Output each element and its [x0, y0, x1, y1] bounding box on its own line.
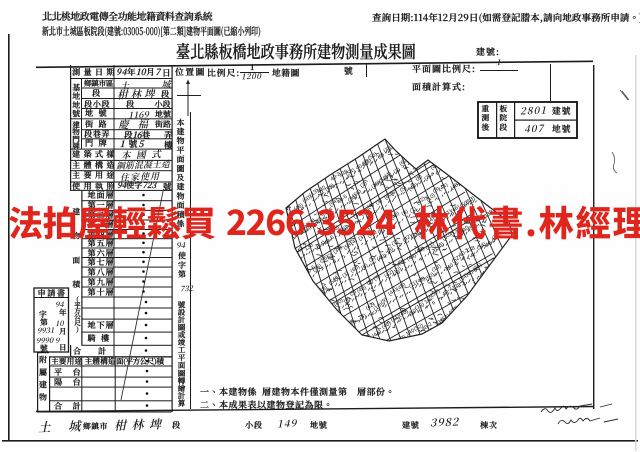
svg-text:(3): (3) [286, 376, 295, 385]
svg-text:(4): (4) [499, 275, 508, 284]
svg-text:(7): (7) [339, 351, 348, 360]
svg-text:(9): (9) [449, 154, 458, 163]
svg-text:(56): (56) [303, 293, 315, 303]
svg-text:(44): (44) [253, 255, 265, 265]
svg-text:(46): (46) [463, 164, 475, 175]
svg-text:(40): (40) [321, 357, 333, 367]
svg-text:(42): (42) [447, 129, 458, 140]
svg-text:(38): (38) [383, 144, 395, 155]
svg-text:(42): (42) [344, 335, 355, 346]
svg-text:(38): (38) [297, 316, 309, 327]
svg-text:(60): (60) [350, 264, 362, 275]
svg-text:(6): (6) [303, 365, 312, 374]
svg-text:40-6: 40-6 [266, 335, 278, 347]
svg-text:(58): (58) [493, 285, 505, 296]
svg-text:138: 138 [269, 314, 280, 324]
svg-text:(40): (40) [422, 143, 434, 153]
svg-text:(2): (2) [359, 180, 368, 189]
svg-text:40-6: 40-6 [284, 302, 296, 314]
svg-text:(50): (50) [267, 266, 279, 277]
svg-text:(3): (3) [324, 308, 333, 317]
svg-text:(3): (3) [307, 341, 316, 350]
svg-text:(13): (13) [431, 263, 443, 273]
svg-text:(3): (3) [513, 275, 522, 284]
svg-text:(44): (44) [454, 143, 466, 153]
svg-text:(13): (13) [273, 261, 284, 272]
svg-text:(5): (5) [416, 153, 425, 162]
svg-text:140: 140 [473, 184, 484, 194]
svg-text:(36): (36) [273, 332, 284, 343]
svg-text:(13): (13) [257, 300, 269, 310]
svg-text:(46): (46) [379, 344, 391, 354]
svg-text:(46): (46) [258, 274, 270, 285]
svg-text:(9): (9) [245, 260, 254, 269]
svg-text:(48): (48) [361, 353, 373, 364]
svg-text:140: 140 [263, 291, 274, 301]
svg-text:40-2: 40-2 [263, 321, 276, 332]
svg-text:(8): (8) [328, 355, 337, 364]
svg-text:(56): (56) [484, 263, 495, 274]
svg-text:(2): (2) [494, 259, 503, 268]
svg-text:(5): (5) [331, 329, 340, 338]
svg-text:(54): (54) [278, 308, 290, 319]
svg-text:(4): (4) [398, 133, 407, 142]
svg-text:(5): (5) [310, 362, 319, 370]
svg-text:138: 138 [289, 281, 300, 291]
svg-text:(36): (36) [293, 297, 304, 308]
svg-text:(5): (5) [429, 113, 438, 122]
svg-text:(58): (58) [308, 310, 320, 320]
svg-text:(54): (54) [296, 274, 308, 284]
svg-text:(2): (2) [476, 294, 485, 303]
svg-text:(10): (10) [333, 368, 345, 378]
svg-text:(38): (38) [483, 284, 495, 295]
svg-text:(38): (38) [278, 356, 290, 367]
svg-text:(3): (3) [407, 132, 416, 141]
svg-text:(7): (7) [439, 136, 448, 145]
svg-text:(58): (58) [287, 349, 299, 359]
svg-text:(40): (40) [436, 103, 448, 113]
svg-text:(6): (6) [323, 329, 332, 338]
svg-text:(11): (11) [371, 352, 382, 362]
svg-text:(4): (4) [316, 312, 325, 321]
svg-text:(52): (52) [272, 291, 283, 302]
svg-text:(9): (9) [345, 370, 354, 379]
svg-text:(2): (2) [272, 358, 281, 367]
svg-text:(8): (8) [415, 174, 424, 183]
svg-text:(2): (2) [293, 325, 302, 334]
svg-text:(6): (6) [343, 296, 352, 305]
svg-text:(4): (4) [298, 348, 307, 357]
svg-text:40-2: 40-2 [279, 281, 292, 291]
svg-text:(60): (60) [412, 119, 424, 129]
svg-text:(50): (50) [387, 342, 398, 353]
svg-text:140: 140 [283, 258, 294, 268]
svg-text:(60): (60) [297, 373, 309, 384]
svg-text:(6): (6) [408, 157, 417, 166]
svg-text:(10): (10) [354, 336, 365, 347]
svg-text:(11): (11) [456, 173, 467, 184]
svg-text:(6): (6) [423, 121, 432, 130]
svg-text:(60): (60) [312, 331, 324, 342]
svg-text:(52): (52) [324, 183, 336, 194]
svg-text:(11): (11) [251, 274, 262, 285]
svg-text:(10): (10) [440, 157, 452, 167]
svg-text:(8): (8) [430, 140, 439, 149]
svg-text:(8): (8) [347, 319, 356, 328]
svg-text:(58): (58) [391, 134, 403, 145]
svg-text:(44): (44) [353, 361, 364, 372]
svg-text:(2): (2) [310, 289, 319, 298]
svg-text:(56): (56) [281, 327, 292, 338]
